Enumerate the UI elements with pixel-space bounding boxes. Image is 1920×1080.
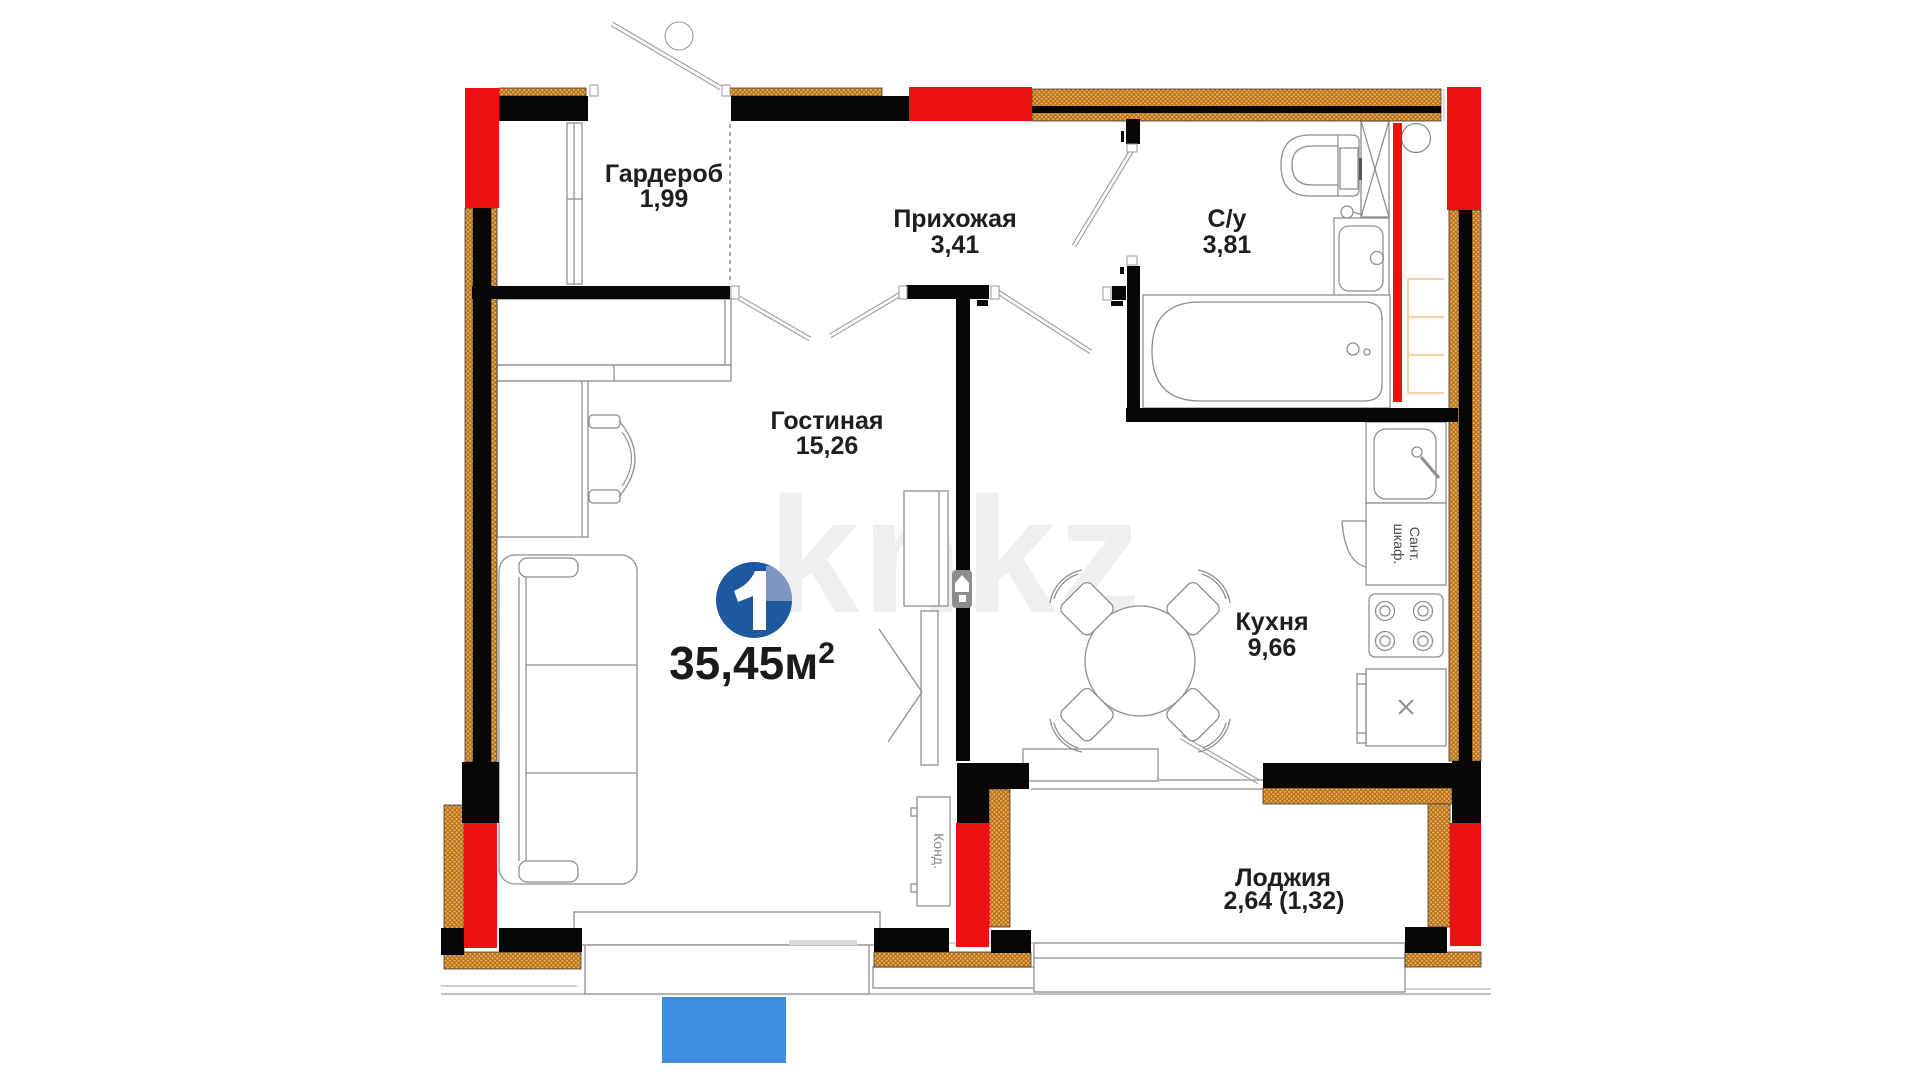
svg-text:Сант.: Сант. <box>1407 527 1423 562</box>
svg-text:3,41: 3,41 <box>931 231 980 259</box>
svg-text:2,64 (1,32): 2,64 (1,32) <box>1224 887 1345 915</box>
svg-text:Прихожая: Прихожая <box>893 205 1016 233</box>
svg-text:Гардероб: Гардероб <box>605 160 723 188</box>
svg-text:3,81: 3,81 <box>1203 231 1252 259</box>
svg-text:1,99: 1,99 <box>640 185 689 213</box>
svg-text:Гостиная: Гостиная <box>771 407 884 435</box>
svg-text:35,45м2: 35,45м2 <box>669 637 835 689</box>
svg-text:шкаф.: шкаф. <box>1391 524 1407 565</box>
svg-text:Конд.: Конд. <box>931 833 947 869</box>
svg-text:С/у: С/у <box>1208 205 1247 233</box>
svg-text:9,66: 9,66 <box>1248 634 1297 662</box>
svg-text:15,26: 15,26 <box>796 432 859 460</box>
svg-text:Кухня: Кухня <box>1235 608 1308 636</box>
